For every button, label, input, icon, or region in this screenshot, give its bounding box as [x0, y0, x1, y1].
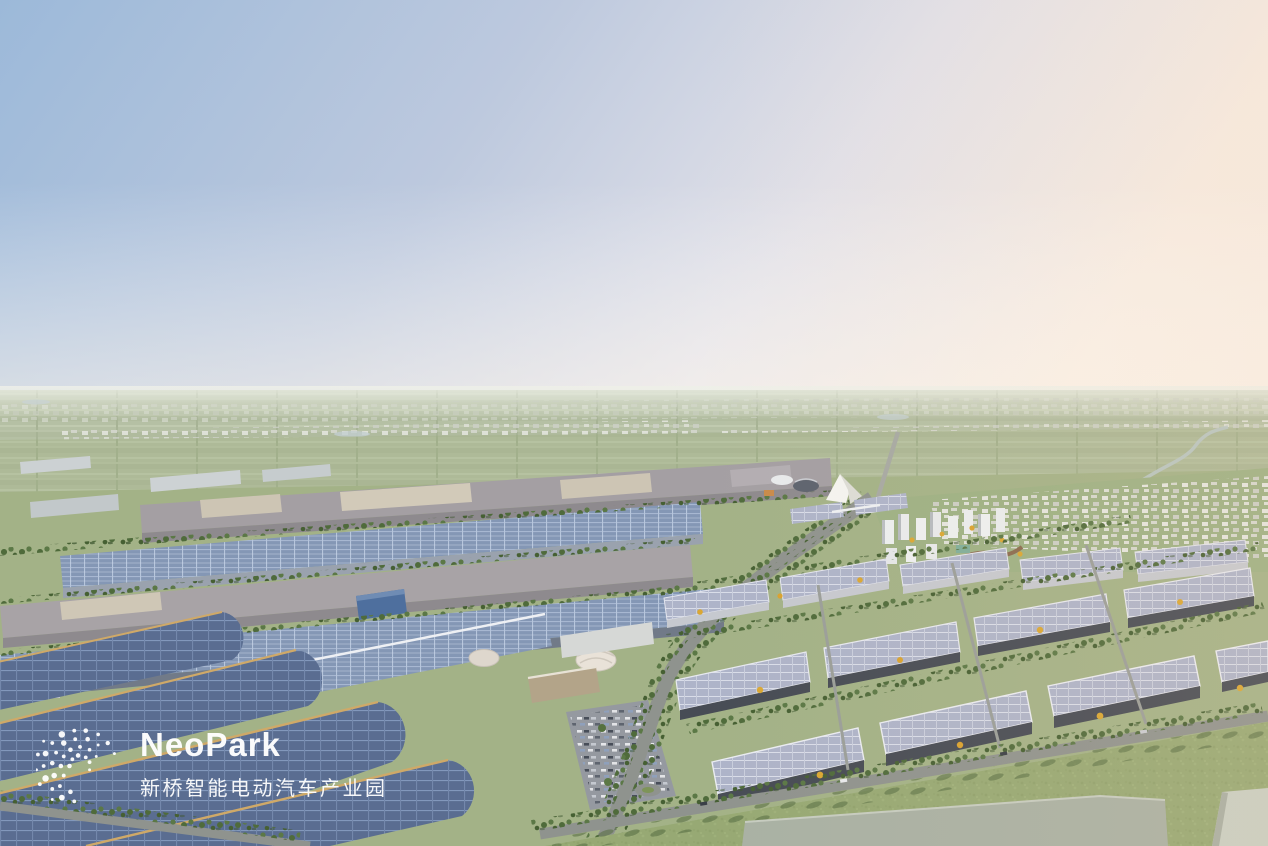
- watermark-brand: NeoPark: [140, 728, 388, 763]
- watermark-text: NeoPark 新桥智能电动汽车产业园: [140, 728, 388, 801]
- dot-swirl-logo-icon: [36, 722, 124, 810]
- watermark: NeoPark 新桥智能电动汽车产业园: [36, 720, 388, 810]
- watermark-subtitle: 新桥智能电动汽车产业园: [140, 772, 388, 801]
- aerial-render: NeoPark 新桥智能电动汽车产业园: [0, 0, 1268, 846]
